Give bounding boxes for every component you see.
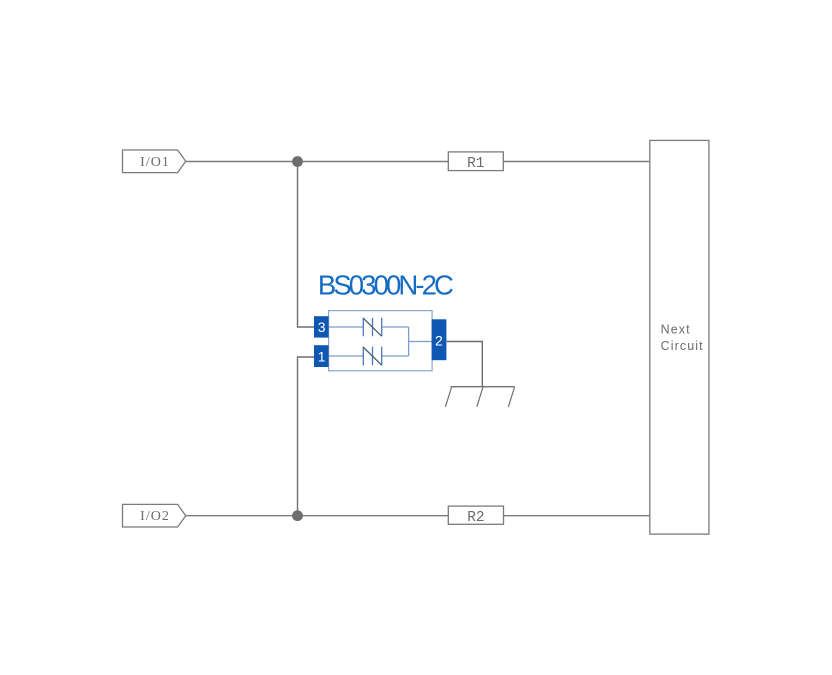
svg-text:Circuit: Circuit <box>661 339 704 353</box>
svg-text:I/O1: I/O1 <box>140 155 170 170</box>
svg-text:I/O2: I/O2 <box>140 509 170 524</box>
svg-text:2: 2 <box>435 332 443 348</box>
svg-text:R2: R2 <box>467 510 484 526</box>
svg-text:BS0300N-2C: BS0300N-2C <box>318 269 454 300</box>
svg-text:3: 3 <box>318 319 326 335</box>
svg-text:Next: Next <box>661 322 691 336</box>
svg-text:R1: R1 <box>467 156 484 172</box>
svg-text:1: 1 <box>318 348 326 364</box>
